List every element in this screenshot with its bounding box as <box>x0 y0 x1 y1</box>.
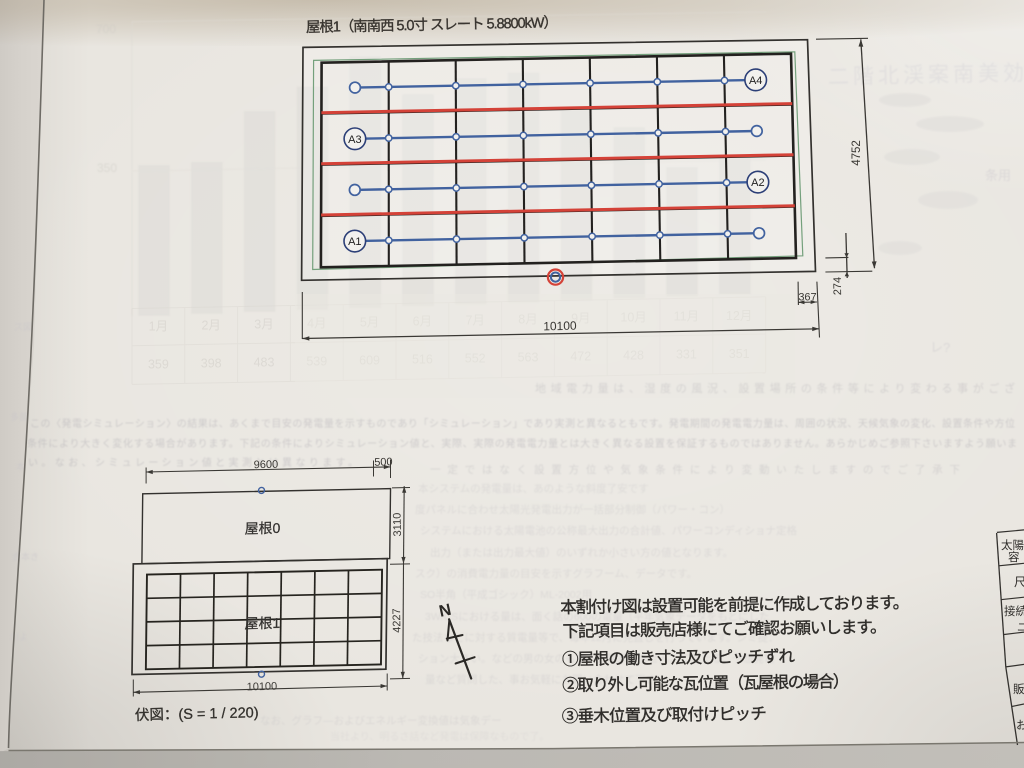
svg-text:ス図: ス図 <box>14 322 32 332</box>
svg-text:地域電力量は、湿度の風況、設置場所の条件等により変わる事がご: 地域電力量は、湿度の風況、設置場所の条件等により変わる事がござ <box>535 381 1015 395</box>
svg-text:3110: 3110 <box>392 513 404 537</box>
svg-text:い。なお、シミュレーション値と実測とは異なります。: い。なお、シミュレーション値と実測とは異なります。 <box>28 456 358 469</box>
svg-text:N: N <box>437 601 452 621</box>
svg-text:274: 274 <box>832 277 844 296</box>
svg-text:お: お <box>1016 719 1024 732</box>
svg-text:4752: 4752 <box>851 140 863 166</box>
svg-text:一定ではなく設置方位や気象条件により変動いたしますのでご了承: 一定ではなく設置方位や気象条件により変動いたしますのでご了承下 <box>430 463 960 476</box>
svg-text:多部: 多部 <box>10 411 28 422</box>
svg-text:接続: 接続 <box>1004 604 1024 618</box>
svg-text:スク）の消費電力量の目安を示すグラフーム、データです。: スク）の消費電力量の目安を示すグラフーム、データです。 <box>415 567 697 580</box>
svg-text:350: 350 <box>97 161 117 175</box>
svg-text:販: 販 <box>1013 683 1024 696</box>
svg-text:ユ: ユ <box>1017 622 1024 634</box>
svg-text:屋根1（南南西 5.0寸 スレート 5.8800kW）: 屋根1（南南西 5.0寸 スレート 5.8800kW） <box>306 14 558 36</box>
svg-text:483: 483 <box>254 356 275 370</box>
svg-text:10100: 10100 <box>247 681 278 694</box>
svg-text:度パネルに合わせ太陽光発電出力が一括部分制御（パワー・コン）: 度パネルに合わせ太陽光発電出力が一括部分制御（パワー・コン） <box>415 503 730 516</box>
svg-text:システムにおける太陽電池の公称最大出力の合計値、パワーコンデ: システムにおける太陽電池の公称最大出力の合計値、パワーコンディショナ定格 <box>420 524 797 537</box>
svg-text:本: 本 <box>16 461 25 472</box>
svg-text:本システムの発電量は、あのような斜度了安です: 本システムの発電量は、あのような斜度了安です <box>418 482 649 495</box>
svg-text:なお、グラフ―およびエネルギー変換値は気象デー: なお、グラフ―およびエネルギー変換値は気象デー <box>260 714 502 727</box>
svg-text:伏図：(S = 1 / 220): 伏図：(S = 1 / 220) <box>135 704 259 724</box>
svg-text:尺: 尺 <box>1014 575 1024 589</box>
svg-text:条件により大きく変化する場合があります。下記の条件によりシミ: 条件により大きく変化する場合があります。下記の条件によりシミュレーション値と、実… <box>27 437 1017 450</box>
svg-text:3月: 3月 <box>254 318 273 332</box>
svg-text:合本き: 合本き <box>12 551 39 562</box>
svg-text:出力（または出力最大値）のいずれか小さい方の値となります。: 出力（または出力最大値）のいずれか小さい方の値となります。 <box>430 546 733 559</box>
svg-text:700: 700 <box>96 22 116 36</box>
svg-text:359: 359 <box>148 358 169 372</box>
svg-text:この〈発電シミュレーション〉の結果は、あくまで目安の発電量を: この〈発電シミュレーション〉の結果は、あくまで目安の発電量を示すものであり「シミ… <box>30 417 1015 430</box>
svg-text:398: 398 <box>201 357 222 371</box>
svg-text:A4: A4 <box>749 75 762 87</box>
svg-text:②取り外し可能な瓦位置（瓦屋根の場合）: ②取り外し可能な瓦位置（瓦屋根の場合） <box>562 672 849 695</box>
svg-text:10100: 10100 <box>543 319 577 334</box>
svg-text:屋根1: 屋根1 <box>244 615 280 632</box>
svg-text:川よ: 川よ <box>10 632 28 642</box>
svg-text:500: 500 <box>374 456 393 468</box>
svg-text:2月: 2月 <box>201 319 220 333</box>
svg-text:9600: 9600 <box>254 459 279 472</box>
svg-text:条用: 条用 <box>985 168 1011 183</box>
svg-text:容: 容 <box>1008 550 1020 564</box>
svg-text:二階北渓案南美効果: 二階北渓案南美効果 <box>828 61 1024 89</box>
svg-text:4227: 4227 <box>391 608 404 633</box>
svg-text:当社より、明るさ話など発電は保障なもので了。: 当社より、明るさ話など発電は保障なもので了。 <box>330 730 549 743</box>
svg-text:本割付け図は設置可能を前提に作成しております。: 本割付け図は設置可能を前提に作成しております。 <box>560 593 909 617</box>
svg-text:367: 367 <box>798 291 816 303</box>
svg-text:A2: A2 <box>751 177 764 189</box>
svg-text:①屋根の働き寸法及びピッチずれ: ①屋根の働き寸法及びピッチずれ <box>562 647 796 669</box>
svg-text:屋根0: 屋根0 <box>245 520 281 537</box>
svg-text:レ?: レ? <box>930 340 950 355</box>
svg-text:太陽: 太陽 <box>1001 539 1024 552</box>
svg-text:A1: A1 <box>348 236 361 248</box>
svg-text:③垂木位置及び取付けピッチ: ③垂木位置及び取付けピッチ <box>562 704 767 726</box>
svg-text:1月: 1月 <box>149 320 168 334</box>
svg-text:A3: A3 <box>348 134 361 146</box>
